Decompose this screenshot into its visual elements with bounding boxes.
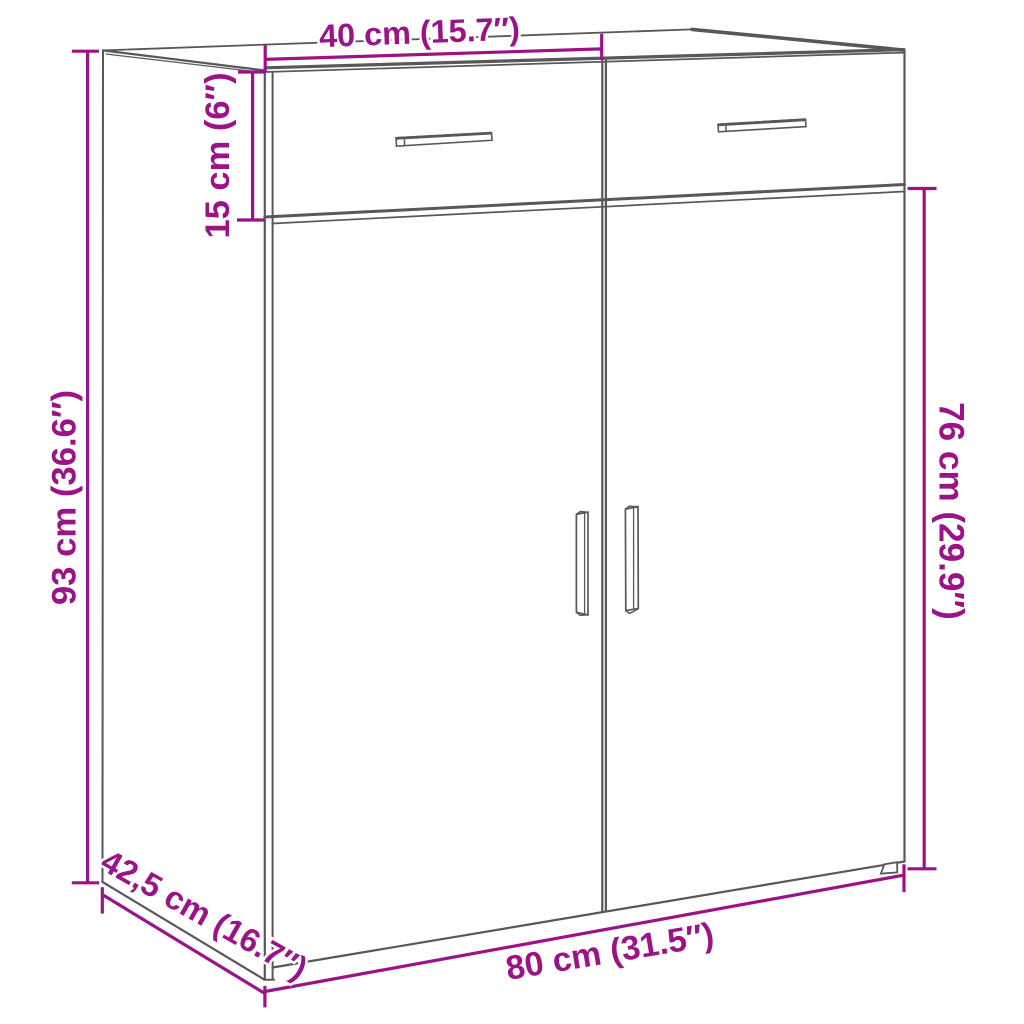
svg-text:93 cm (36.6″): 93 cm (36.6″) [45, 390, 83, 605]
svg-text:40 cm (15.7″): 40 cm (15.7″) [318, 11, 520, 55]
svg-text:76 cm (29.9″): 76 cm (29.9″) [931, 402, 970, 620]
svg-text:15 cm (6″): 15 cm (6″) [199, 72, 237, 238]
